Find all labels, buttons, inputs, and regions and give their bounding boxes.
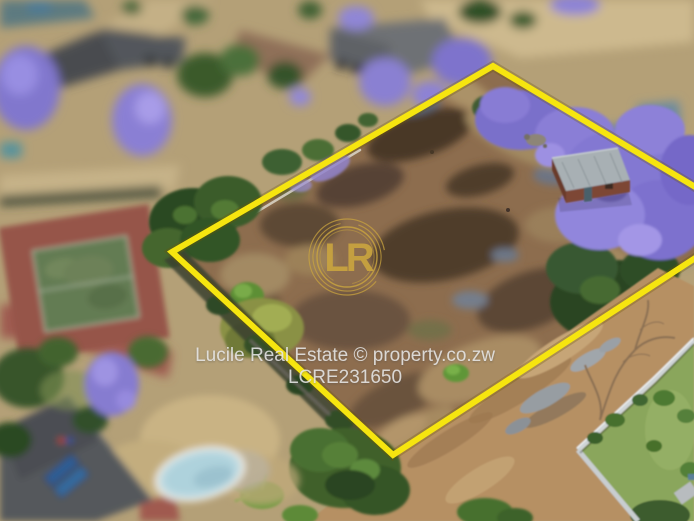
jacaranda-bottom-left: [85, 352, 139, 416]
logo-monogram: LR: [324, 236, 374, 280]
small-pool-top-left: [0, 142, 22, 158]
aerial-property-photo: LR Lucile Real Estate © property.co.zw L…: [0, 0, 694, 521]
aerial-photo-scene: LR: [0, 0, 694, 521]
